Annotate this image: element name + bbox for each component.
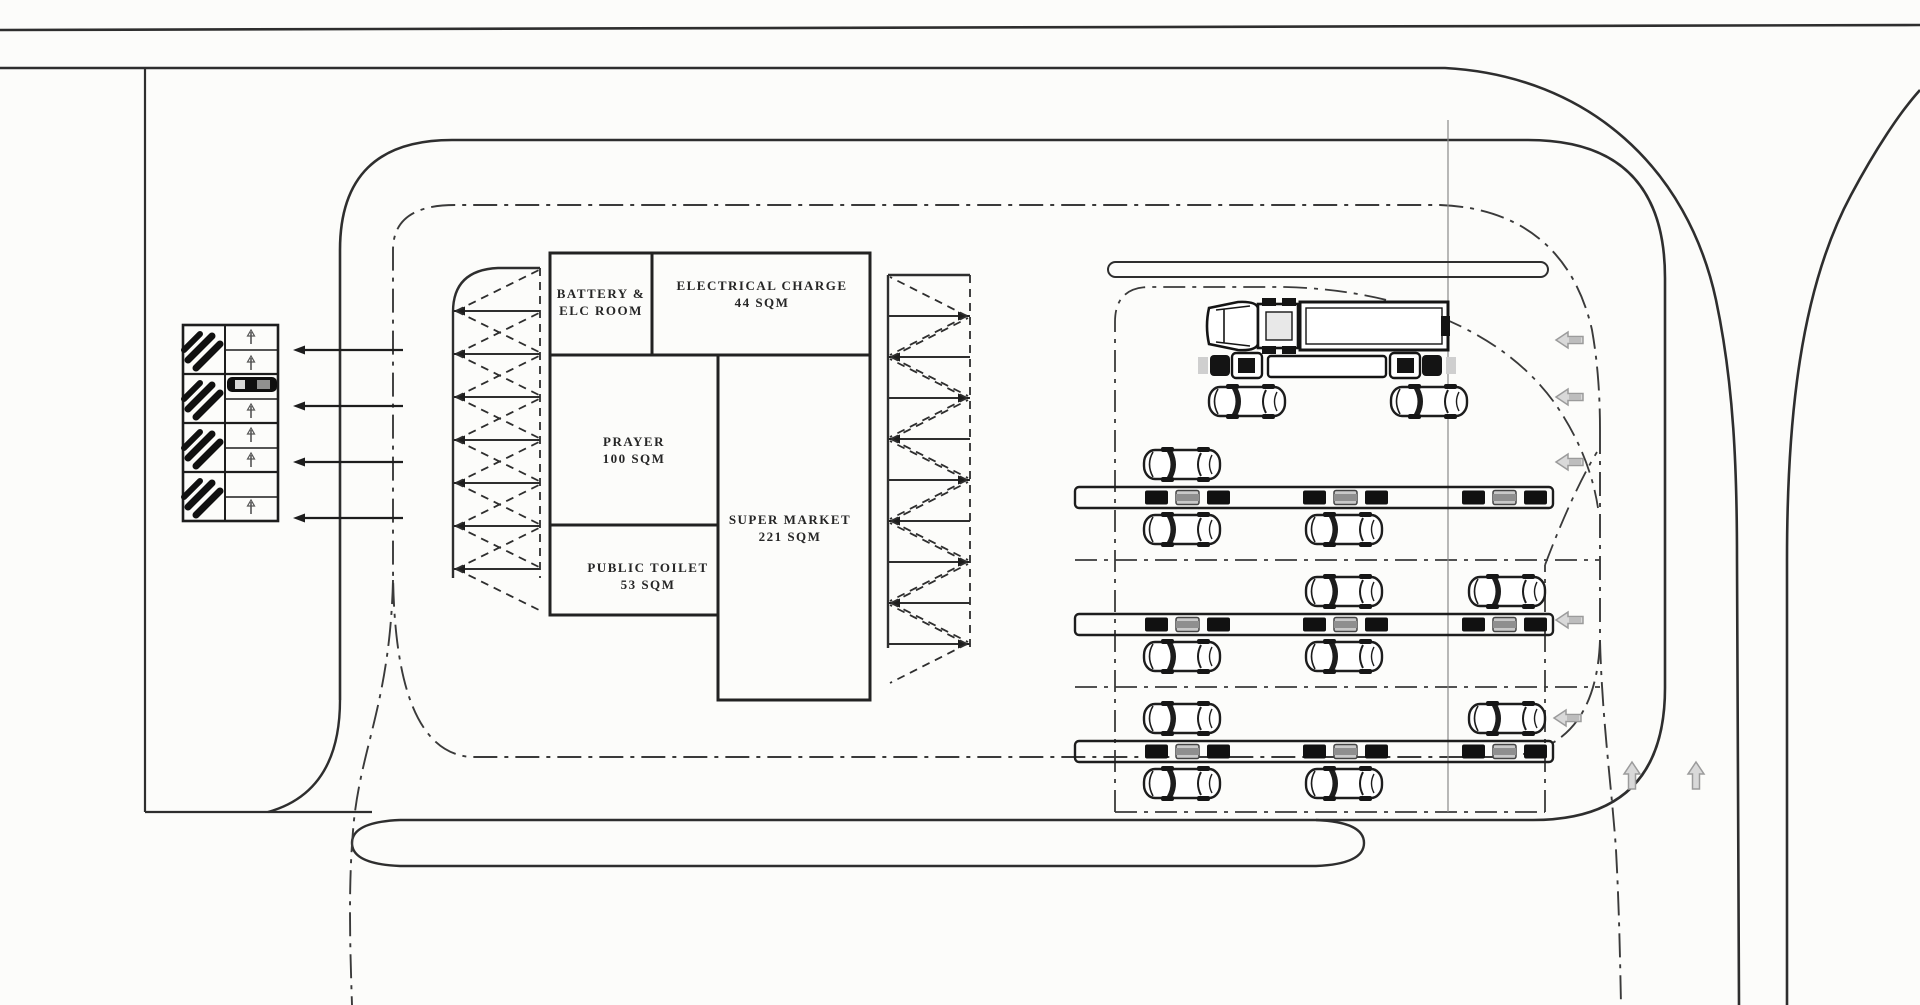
tractor-icon bbox=[1210, 353, 1262, 378]
highway-top bbox=[0, 25, 1920, 1005]
prayer-area: 100 SQM bbox=[603, 451, 666, 466]
bottom-road bbox=[352, 820, 1533, 866]
car-icon bbox=[227, 377, 277, 392]
charger-unit-icon bbox=[1145, 491, 1230, 505]
dispenser-icon bbox=[248, 330, 255, 344]
fuel-pump-slash-icon bbox=[184, 481, 220, 515]
car-icon bbox=[1469, 574, 1545, 609]
site-plan-drawing: BATTERY & ELC ROOM ELECTRICAL CHARGE 44 … bbox=[0, 0, 1920, 1005]
up-arrow-icon bbox=[1624, 762, 1640, 789]
fuel-pump-slash-icon bbox=[184, 432, 220, 466]
super-market-label: SUPER MARKET bbox=[729, 512, 851, 527]
charger-unit-icon bbox=[1145, 618, 1230, 632]
fuel-pump-slash-icon bbox=[184, 383, 220, 417]
charging-island-row-1 bbox=[1075, 447, 1553, 547]
charger-unit-icon bbox=[1303, 745, 1388, 759]
car-icon bbox=[1391, 384, 1467, 419]
car-icon bbox=[1306, 766, 1382, 801]
public-toilet-label: PUBLIC TOILET bbox=[587, 560, 708, 575]
left-arrow-icon bbox=[1556, 332, 1583, 348]
car-icon bbox=[1306, 574, 1382, 609]
public-toilet-area: 53 SQM bbox=[621, 577, 676, 592]
car-icon bbox=[1144, 447, 1220, 482]
dispenser-icon bbox=[248, 428, 255, 442]
exit-centerline-south bbox=[1600, 640, 1621, 1005]
charger-unit-icon bbox=[1303, 618, 1388, 632]
site-plan-canvas: BATTERY & ELC ROOM ELECTRICAL CHARGE 44 … bbox=[0, 0, 1920, 1005]
charger-unit-icon bbox=[1462, 491, 1547, 505]
charger-unit-icon bbox=[1145, 745, 1230, 759]
truck-row-2 bbox=[1198, 353, 1456, 378]
charging-island-row-2 bbox=[1075, 574, 1553, 674]
super-market-area: 221 SQM bbox=[759, 529, 822, 544]
dispenser-icon bbox=[248, 453, 255, 467]
car-icon bbox=[1306, 512, 1382, 547]
canopy-bar bbox=[1108, 262, 1548, 277]
fuel-pump-slash-icon bbox=[184, 334, 220, 368]
car-icon bbox=[1144, 766, 1220, 801]
exit-centerline-southwest bbox=[350, 580, 393, 1005]
charger-unit-icon bbox=[1462, 745, 1547, 759]
building-block bbox=[550, 253, 870, 700]
up-arrow-icon bbox=[1688, 762, 1704, 789]
car-icon bbox=[1144, 512, 1220, 547]
car-icon bbox=[1209, 384, 1285, 419]
parking-column-right bbox=[888, 275, 970, 683]
room-labels: BATTERY & ELC ROOM ELECTRICAL CHARGE 44 … bbox=[557, 278, 851, 592]
loading-pad bbox=[1198, 357, 1208, 374]
left-arrow-icon bbox=[1556, 454, 1583, 470]
parking-column-left bbox=[453, 268, 540, 610]
battery-room-label-line2: ELC ROOM bbox=[559, 303, 643, 318]
truck-icon bbox=[1207, 298, 1450, 354]
ramp-outer-edge bbox=[1787, 90, 1920, 1005]
car-icon bbox=[1306, 639, 1382, 674]
car-icon bbox=[1469, 701, 1545, 736]
electrical-charge-area: 44 SQM bbox=[735, 295, 790, 310]
charger-unit-icon bbox=[1303, 491, 1388, 505]
prayer-label: PRAYER bbox=[603, 434, 665, 449]
bottom-road-bottom-edge bbox=[352, 820, 1364, 866]
site-boundary-left bbox=[145, 68, 372, 812]
car-icon bbox=[1144, 701, 1220, 736]
battery-room-label-line1: BATTERY & bbox=[557, 286, 646, 301]
fuel-island bbox=[183, 325, 403, 523]
charger-unit-icon bbox=[1462, 618, 1547, 632]
trailer-outline bbox=[1268, 356, 1386, 377]
dispenser-icon bbox=[248, 356, 255, 370]
bay-approach-lines bbox=[293, 346, 403, 523]
left-arrow-icon bbox=[1556, 612, 1583, 628]
electrical-charge-label: ELECTRICAL CHARGE bbox=[676, 278, 847, 293]
charging-island-row-3 bbox=[1075, 701, 1581, 801]
loading-pad bbox=[1446, 357, 1456, 374]
dispenser-icon bbox=[248, 500, 255, 514]
tractor-icon bbox=[1390, 353, 1442, 378]
dispenser-icon bbox=[248, 404, 255, 418]
left-arrow-icon bbox=[1556, 389, 1583, 405]
car-icon bbox=[1144, 639, 1220, 674]
ring-road-exit-curve bbox=[268, 700, 340, 812]
highway-far-edge bbox=[0, 25, 1920, 30]
left-arrow-icon bbox=[1554, 710, 1581, 726]
room-super-market bbox=[718, 355, 870, 700]
